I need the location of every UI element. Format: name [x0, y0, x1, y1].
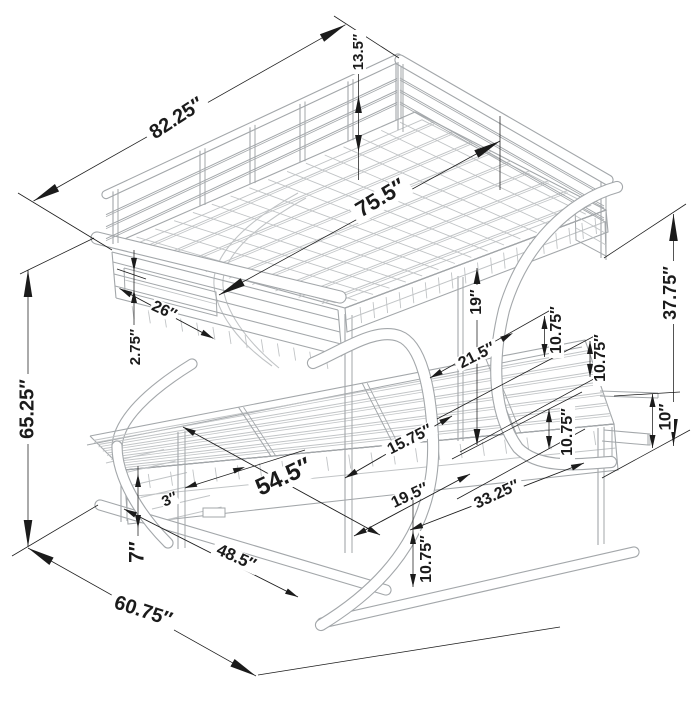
svg-text:10.75″: 10.75″ — [548, 306, 565, 354]
svg-text:10″: 10″ — [655, 403, 674, 430]
svg-text:37.75″: 37.75″ — [660, 266, 680, 320]
svg-text:19″: 19″ — [468, 289, 485, 315]
svg-text:10.75″: 10.75″ — [418, 535, 435, 583]
svg-text:2.75″: 2.75″ — [127, 329, 144, 365]
svg-text:65.25″: 65.25″ — [16, 379, 38, 439]
svg-text:7″: 7″ — [126, 541, 149, 563]
svg-text:13.5″: 13.5″ — [350, 34, 367, 70]
svg-text:10.75″: 10.75″ — [559, 408, 576, 456]
svg-text:10.75″: 10.75″ — [592, 334, 609, 382]
